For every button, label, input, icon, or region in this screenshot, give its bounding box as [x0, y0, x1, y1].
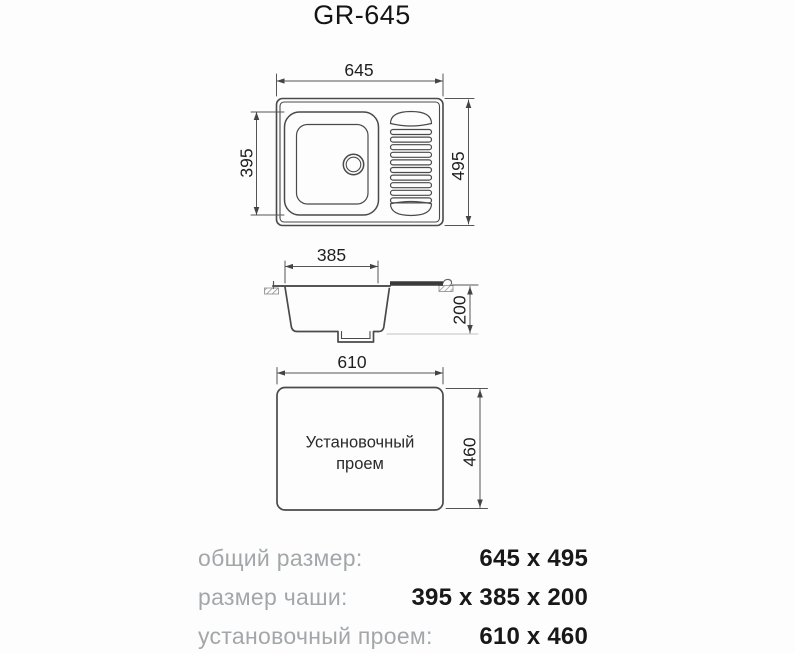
arrow-up-icon: [466, 100, 472, 108]
spec-row-overall: общий размер: 645 x 495: [198, 545, 588, 575]
arrow-right-icon: [435, 78, 443, 83]
dim-label-bowl-depth: 200: [450, 295, 470, 324]
opening-view: 610 Установочный проем 460: [277, 352, 488, 510]
arrow-up-icon: [477, 390, 483, 398]
arrow-up-icon: [254, 112, 260, 120]
dim-label-opening-width: 610: [337, 352, 366, 372]
dim-label-overall-width: 645: [344, 60, 373, 80]
rib-top: [391, 112, 432, 127]
spec-label: общий размер:: [198, 545, 363, 572]
clip-hook-right: [443, 279, 452, 283]
opening-caption-line2: проем: [336, 455, 384, 473]
sink-dimension-drawing: GR-645 645: [0, 0, 795, 650]
bowl-section-profile: [285, 287, 389, 342]
drainboard-ribs: [391, 112, 432, 216]
arrow-right-icon: [435, 370, 443, 375]
dim-label-overall-depth: 495: [448, 151, 468, 180]
arrow-down-icon: [254, 207, 260, 215]
spec-row-opening: установочный проем: 610 x 460: [198, 623, 588, 653]
sink-outer-frame: [277, 99, 444, 226]
dim-label-opening-height: 460: [460, 437, 480, 466]
spec-value: 610 x 460: [479, 623, 588, 651]
spec-label: размер чаши:: [198, 584, 348, 611]
arrow-left-icon: [285, 264, 293, 269]
dim-label-bowl-width: 385: [317, 245, 346, 265]
section-view: 385 200: [265, 245, 479, 342]
arrow-left-icon: [277, 78, 285, 83]
top-view: 645: [237, 60, 475, 226]
dim-label-bowl-length: 395: [237, 148, 257, 177]
arrow-down-icon: [477, 500, 483, 508]
drain-hole-inner: [346, 157, 361, 172]
spec-row-bowl: размер чаши: 395 x 385 x 200: [198, 584, 588, 614]
spec-value: 395 x 385 x 200: [412, 584, 589, 612]
mounting-clip-right: [439, 286, 453, 292]
arrow-up-icon: [467, 287, 473, 295]
spec-label: установочный проем:: [198, 623, 433, 650]
arrow-left-icon: [277, 370, 285, 375]
rib-bottom: [391, 202, 432, 216]
drain-recess-inner: [342, 332, 371, 339]
arrow-down-icon: [467, 325, 473, 333]
mounting-clip-left: [265, 288, 279, 294]
spec-value: 645 x 495: [479, 545, 588, 573]
arrow-right-icon: [370, 264, 378, 269]
opening-caption-line1: Установочный: [306, 434, 415, 452]
arrow-down-icon: [466, 216, 472, 224]
bowl-inner-outline: [297, 125, 369, 205]
